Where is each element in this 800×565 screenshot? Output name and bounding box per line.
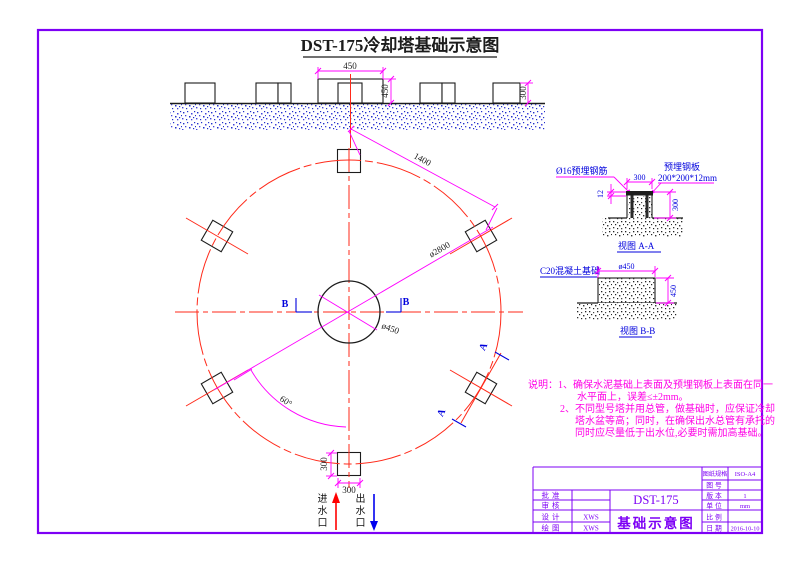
label-embedded-plate-2: 200*200*12mm <box>658 173 717 183</box>
notes-block: 说明：1、确保水泥基础上表面及预埋钢板上表面在同一 水平面上，误差≤±2mm。 … <box>528 378 775 439</box>
tb-model: DST-175 <box>633 493 678 507</box>
tb-label-design: 设计 <box>542 512 563 522</box>
inlet-label: 进水口 <box>315 493 325 529</box>
foundation-block <box>185 83 215 103</box>
tb-value-unit: mm <box>740 503 750 510</box>
foundation-block <box>493 83 520 103</box>
tb-value-sheet-size: ISO-A4 <box>735 471 756 478</box>
caption-view-aa: 视图 A-A <box>618 240 655 251</box>
tb-label-review: 审核 <box>542 500 563 510</box>
note-line-5: 同时应尽量低于出水位,必要时需加高基础。 <box>575 426 768 439</box>
tb-drawing-name: 基础示意图 <box>617 515 695 531</box>
angle-arc <box>251 370 346 427</box>
tb-value-date: 2016-10-10 <box>731 526 760 533</box>
titleblock: 批准 审核 设计 绘图 XWS XWS DST-175 基础示意图 图纸规格 图… <box>533 467 762 533</box>
dim-bb-height: 450 <box>669 285 678 297</box>
foundation-block <box>278 83 291 103</box>
inlet-arrowhead-icon <box>332 492 340 503</box>
tb-label-drawn: 绘图 <box>542 523 563 533</box>
ground-hatch-bb <box>577 303 677 320</box>
section-marker-b-left: B <box>282 299 289 310</box>
dim-bb-diameter: ø450 <box>619 262 635 271</box>
note-line-2: 水平面上，误差≤±2mm。 <box>577 390 689 403</box>
label-c20-concrete: C20混凝土基础 <box>540 265 600 276</box>
note-line-3: 2、不同型号塔并用总管，做基础时，应保证冷却 <box>560 402 775 415</box>
tb-label-approve: 批准 <box>542 490 563 500</box>
ground-hatch <box>170 104 545 130</box>
tb-label-version: 版本 <box>706 491 724 500</box>
caption-view-bb: 视图 B-B <box>620 325 655 336</box>
detail-aa: Ø16预埋钢筋 预埋钢板 200*200*12mm 300 12 <box>556 161 717 252</box>
dim-aa-width: 300 <box>634 173 646 182</box>
section-marker-a-lower: A <box>435 407 448 419</box>
concrete-block-bb <box>598 278 655 303</box>
dim-elevation-block-height: 300 <box>518 86 528 100</box>
section-aa-cutline <box>461 353 501 423</box>
dim-block-height-300: 300 <box>319 457 329 471</box>
ground-hatch-aa <box>602 218 683 237</box>
drawing-page: DST-175冷却塔基础示意图 450 450 300 <box>0 0 800 565</box>
embedded-plate <box>626 191 653 196</box>
dim-center-circle-450: ø450 <box>380 320 401 336</box>
dim-chord-1400: 1400 <box>412 151 433 169</box>
outlet-label: 出水口 <box>353 493 363 529</box>
dim-aa-height: 300 <box>671 199 680 211</box>
dim-aa-plate-thickness: 12 <box>596 190 605 198</box>
tb-label-date: 日期 <box>706 525 724 533</box>
elevation-view: 450 450 300 <box>170 61 545 148</box>
tb-label-scale: 比例 <box>706 513 724 522</box>
label-embedded-plate-1: 预埋钢板 <box>664 161 700 172</box>
dim-elevation-height: 450 <box>380 84 390 98</box>
section-marker-b-right: B <box>403 297 410 308</box>
drawing-canvas: DST-175冷却塔基础示意图 450 450 300 <box>0 0 800 565</box>
tb-label-unit: 单位 <box>706 501 724 510</box>
tb-value-version: 1 <box>743 493 746 500</box>
label-embedded-rebar: Ø16预埋钢筋 <box>556 165 608 176</box>
dim-bolt-circle-2800: ø2800 <box>427 239 452 259</box>
note-line-1: 说明：1、确保水泥基础上表面及预埋钢板上表面在同一 <box>528 378 773 391</box>
dim-angle-60: 60° <box>278 393 294 408</box>
foundation-block <box>420 83 442 103</box>
tb-value-design: XWS <box>583 514 599 522</box>
section-marker-a-upper: A <box>477 341 490 353</box>
outlet-arrowhead-icon <box>370 521 378 531</box>
detail-bb: C20混凝土基础 ø450 450 视图 B-B <box>540 262 678 337</box>
tb-label-drawing-no: 图号 <box>706 482 724 490</box>
tb-value-drawn: XWS <box>583 525 599 533</box>
foundation-block <box>442 83 455 103</box>
tb-label-sheet-size: 图纸规格 <box>703 470 729 478</box>
dim-elevation-width: 450 <box>343 61 357 71</box>
foundation-block <box>256 83 278 103</box>
note-line-4: 塔水盆等高；同时，在确保出水总管有承托的 <box>575 414 775 427</box>
page-title: DST-175冷却塔基础示意图 <box>301 35 500 55</box>
plan-view: 1400 ø2800 ø450 60° B B A A 300 300 <box>175 126 523 495</box>
